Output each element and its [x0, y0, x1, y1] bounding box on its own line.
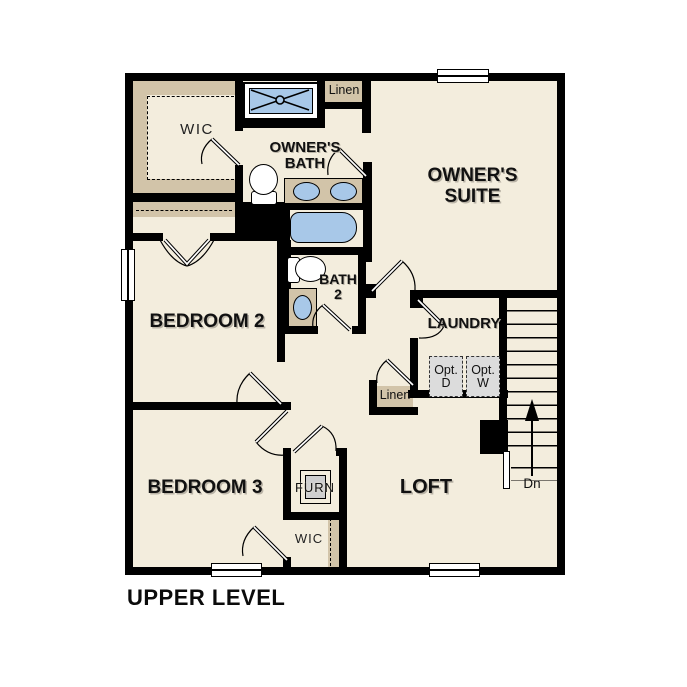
- wall: [369, 407, 418, 415]
- wall: [283, 557, 291, 567]
- wall: [362, 81, 371, 133]
- closet-label-linen-lower: Linen: [377, 389, 413, 403]
- opt-washer-line1: Opt.: [471, 364, 495, 377]
- window-mullion: [438, 75, 488, 77]
- wall: [363, 162, 372, 262]
- wall: [239, 120, 320, 128]
- window: [211, 563, 262, 577]
- shower-pan: [249, 88, 313, 114]
- opt-washer-line2: W: [477, 377, 489, 390]
- window: [121, 249, 135, 301]
- sink: [293, 182, 320, 201]
- wic-shelf-bottom: [133, 179, 235, 193]
- room-label-laundry: LAUNDRY: [420, 316, 508, 332]
- wic-shelf-left: [133, 81, 147, 193]
- wall: [352, 326, 366, 334]
- wall: [283, 326, 318, 334]
- bath2-line2: 2: [315, 287, 361, 302]
- owners-bath-line2: BATH: [253, 156, 357, 172]
- floor-plan: Opt. D Opt. W: [0, 0, 687, 687]
- room-label-bath-2: BATH 2: [315, 272, 361, 302]
- wall: [283, 247, 363, 255]
- wall: [480, 420, 508, 454]
- wall: [410, 290, 423, 308]
- sink: [330, 182, 357, 201]
- wall: [133, 193, 243, 202]
- room-label-bedroom-3: BEDROOM 3: [130, 478, 280, 499]
- window: [429, 563, 480, 577]
- stair-treads: [507, 298, 557, 455]
- sink: [293, 295, 312, 320]
- room-label-bedroom-2: BEDROOM 2: [132, 312, 282, 333]
- stairs-down-label: Dn: [514, 477, 550, 492]
- owners-suite-line2: SUITE: [410, 187, 535, 208]
- room-label-loft: LOFT: [394, 477, 458, 499]
- window-mullion: [127, 250, 129, 300]
- bathtub: [290, 212, 357, 243]
- wall: [415, 290, 557, 298]
- closet-label-linen-upper: Linen: [325, 84, 363, 98]
- wall: [499, 290, 507, 423]
- room-label-owners-bath: OWNER'S BATH: [253, 140, 357, 172]
- room-label-owners-suite: OWNER'S SUITE: [410, 166, 535, 207]
- wall: [133, 233, 163, 241]
- plan-title: UPPER LEVEL: [127, 585, 285, 611]
- owners-bath-line1: OWNER'S: [253, 140, 357, 156]
- room-label-wic-lower: WIC: [286, 532, 332, 546]
- wall: [283, 203, 364, 210]
- wall: [283, 512, 347, 520]
- opt-dryer-line2: D: [441, 377, 450, 390]
- wall: [125, 73, 565, 81]
- opt-dryer-line1: Opt.: [434, 364, 458, 377]
- wall: [339, 517, 347, 567]
- window-mullion: [212, 569, 261, 571]
- optional-washer: Opt. W: [466, 356, 500, 397]
- wall: [557, 73, 565, 575]
- stair-rail-end: [503, 451, 510, 489]
- room-label-furnace: FURN: [288, 481, 342, 495]
- wall: [235, 202, 290, 240]
- wic-shelf-top: [133, 81, 235, 95]
- wall: [125, 567, 565, 575]
- window: [437, 69, 489, 83]
- wall: [323, 102, 365, 109]
- wall: [366, 284, 376, 298]
- room-label-wic-upper: WIC: [157, 122, 237, 138]
- closet-shelf-dashed-line: [136, 210, 232, 211]
- owners-suite-line1: OWNER'S: [410, 166, 535, 187]
- window-mullion: [430, 569, 479, 571]
- optional-dryer: Opt. D: [429, 356, 463, 397]
- bath2-line1: BATH: [315, 272, 361, 287]
- wall: [133, 402, 291, 410]
